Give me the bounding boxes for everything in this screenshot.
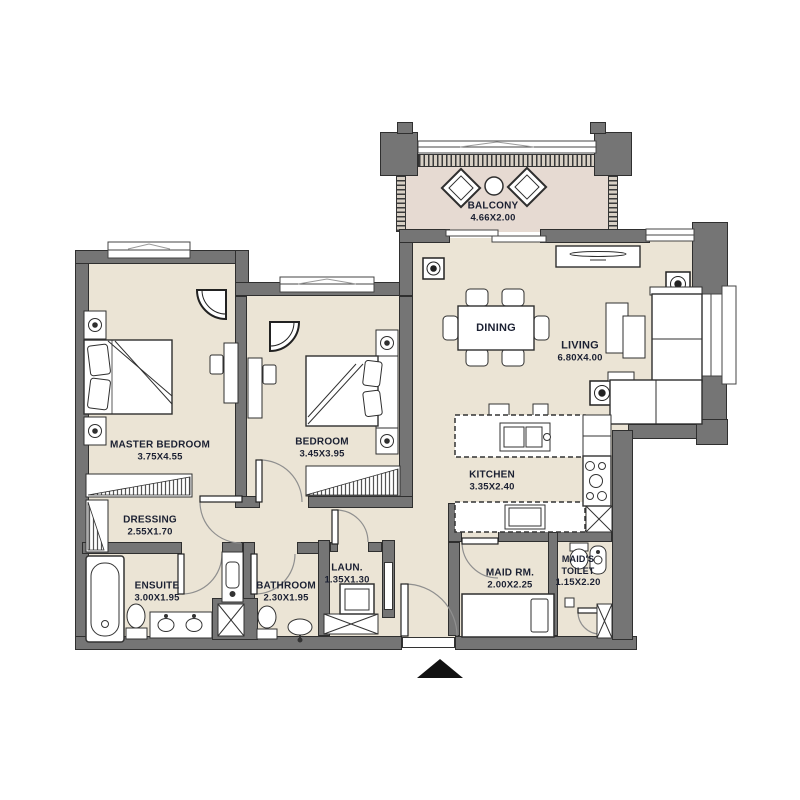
tv-console-icon (556, 246, 640, 267)
maid-bed-icon (462, 594, 554, 637)
room-label-laundry: LAUN.1.35X1.30 (324, 561, 369, 586)
sliding-door (446, 230, 546, 242)
room-label-ensuite: ENSUITE3.00X1.95 (134, 579, 179, 604)
floor-plan: BALCONY4.66X2.00 DINING LIVING6.80X4.00 … (0, 0, 800, 800)
coffee-table-icon (606, 303, 645, 358)
wall-light-icon (197, 290, 299, 351)
washing-machine-icon (340, 584, 374, 614)
room-label-bathroom: BATHROOM2.30X1.95 (256, 579, 316, 604)
balcony-table-icon (485, 177, 503, 195)
room-label-maids-toilet: MAID'S TOILET1.15X2.20 (552, 554, 604, 590)
room-label-kitchen: KITCHEN3.35X2.40 (469, 468, 515, 493)
room-label-bedroom: BEDROOM3.45X3.95 (295, 435, 349, 460)
plan-graphics (0, 0, 800, 800)
bathtub-icon (86, 556, 124, 642)
entrance-marker-icon (417, 659, 463, 678)
room-label-dressing: DRESSING2.55X1.70 (123, 513, 177, 538)
stove-icon (583, 456, 611, 506)
bedroom-desk-icon (248, 358, 276, 418)
room-label-living: LIVING6.80X4.00 (557, 339, 602, 366)
room-label-maid-room: MAID RM.2.00X2.25 (486, 566, 534, 591)
room-label-dining: DINING (476, 321, 516, 335)
wardrobe-icon (86, 466, 400, 552)
room-label-balcony: BALCONY4.66X2.00 (468, 199, 519, 224)
shower-icon (222, 552, 243, 602)
master-bed-icon (84, 311, 172, 445)
room-label-master-bedroom: MASTER BEDROOM3.75X4.55 (110, 438, 210, 463)
master-desk-icon (210, 343, 238, 403)
